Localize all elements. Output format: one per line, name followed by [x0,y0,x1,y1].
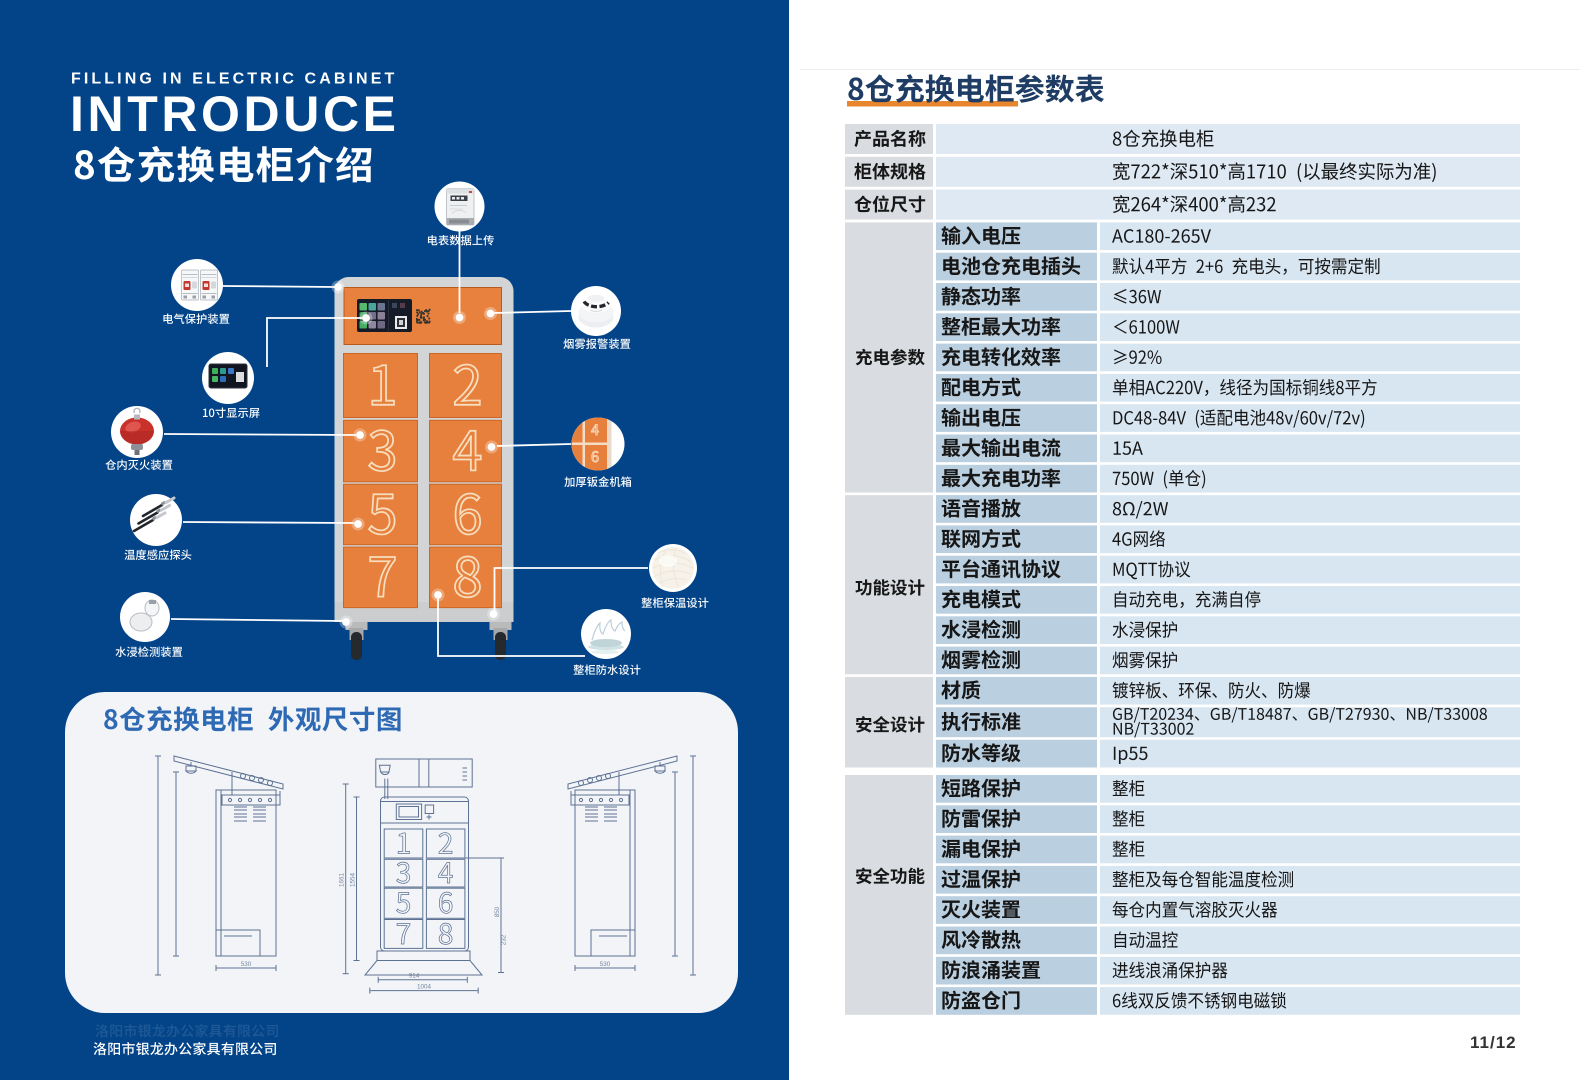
svg-text:INTRODUCE: INTRODUCE [70,86,400,142]
svg-text:914: 914 [409,973,420,980]
svg-text:232: 232 [501,934,508,945]
svg-text:1004: 1004 [417,984,432,991]
svg-text:850: 850 [494,906,501,917]
svg-text:530: 530 [600,961,611,968]
svg-text:11/12: 11/12 [1470,1033,1517,1052]
svg-text:1661: 1661 [339,873,346,888]
svg-text:1554: 1554 [350,873,357,888]
svg-text:FILLING IN ELECTRIC CABINET: FILLING IN ELECTRIC CABINET [71,71,397,88]
svg-text:530: 530 [241,961,252,968]
